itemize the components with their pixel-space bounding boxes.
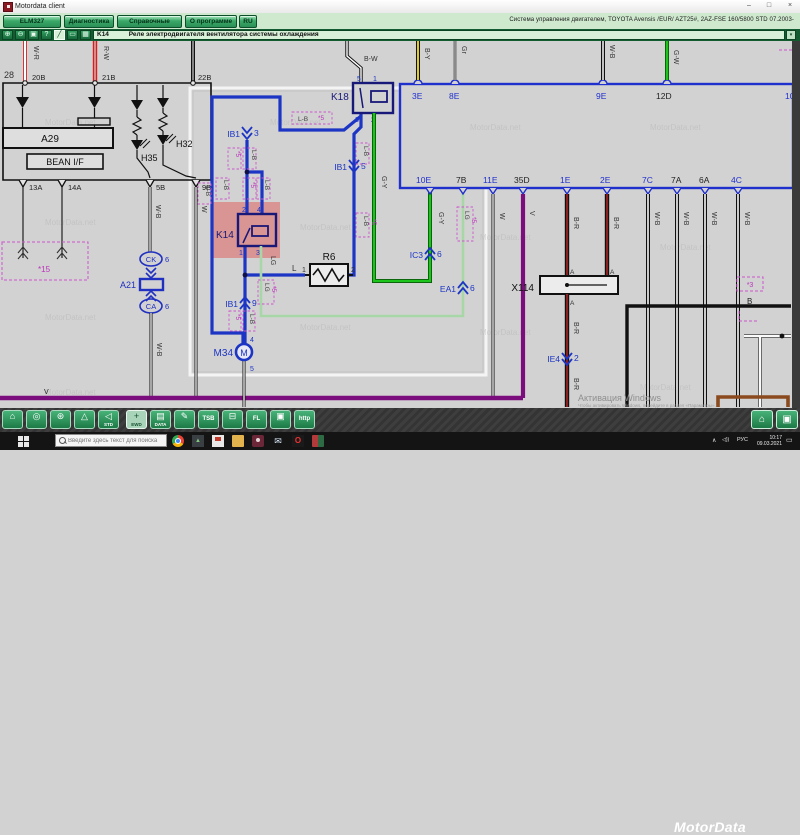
tag-lg: LG: [463, 211, 470, 220]
wire-label-wb: W-B: [155, 343, 162, 357]
label-5b: 5B: [156, 183, 165, 192]
k14-pin4: 4: [257, 207, 261, 214]
warning-triangle-icon[interactable]: △: [74, 410, 95, 429]
diagnostics-search-icon[interactable]: ◎: [26, 410, 47, 429]
wire-label-br: B-R: [572, 322, 579, 334]
tray-expand-icon[interactable]: ∧: [712, 437, 716, 444]
wire-label-br: B-R: [572, 378, 579, 390]
wire-label-v: V: [528, 211, 535, 216]
tag-lg: LG: [263, 283, 270, 292]
folder-icon[interactable]: [232, 435, 244, 447]
menu-elm327[interactable]: ELM327: [3, 15, 61, 28]
ecu-pin-3e: 3E: [412, 91, 423, 101]
menu-diagnostics[interactable]: Диагностика: [64, 15, 114, 28]
settings-search-icon[interactable]: ⊛: [50, 410, 71, 429]
home-button[interactable]: ⌂: [751, 410, 773, 429]
pencil-icon[interactable]: ╱: [54, 30, 65, 40]
label-20b: 20B: [32, 73, 45, 82]
tag-lb: L-B: [298, 116, 308, 123]
ecu-pin-10e: 10E: [416, 175, 431, 185]
k14-pin1: 1: [239, 250, 243, 257]
start-button[interactable]: [18, 436, 29, 447]
label-22b: 22B: [198, 73, 211, 82]
tag-lb: L-B: [362, 146, 369, 156]
label-21b: 21B: [102, 73, 115, 82]
home-glyph: ⌂: [3, 411, 22, 422]
tag-lb: L-B: [263, 180, 270, 190]
notes-icon[interactable]: ✎: [174, 410, 195, 429]
tag-star5: *5: [234, 151, 241, 158]
ref-ic3: IC3: [410, 250, 424, 260]
watermark: MotorData.net: [45, 218, 96, 227]
audio-glyph: ◁: [99, 411, 118, 422]
settings-search-glyph: ⊛: [51, 411, 70, 422]
label-a21: A21: [120, 280, 136, 290]
app-icon: [3, 2, 13, 12]
wire-label-br: B-R: [612, 217, 619, 229]
label-k18: K18: [331, 92, 349, 103]
meet-icon[interactable]: [312, 435, 324, 447]
label-star15: *15: [38, 265, 51, 274]
motordata-logo: MotorData: [674, 819, 746, 835]
notes-glyph: ✎: [175, 411, 194, 422]
label-ca-6: 6: [165, 302, 169, 311]
ref-ib1-3: IB1: [227, 129, 240, 139]
wire-label-by: B-Y: [423, 48, 430, 60]
ewd-glyph: +: [127, 411, 146, 422]
tsb-icon[interactable]: TSB: [198, 410, 219, 429]
label-h35: H35: [141, 153, 158, 163]
ref-ea1: EA1: [440, 284, 456, 294]
menu-language[interactable]: RU: [239, 15, 257, 28]
car-glyph: ⊟: [223, 411, 242, 422]
ecu-pin-6a: 6A: [699, 175, 710, 185]
data-glyph: ▤: [151, 411, 170, 422]
home-icon[interactable]: ⌂: [2, 410, 23, 429]
people-icon[interactable]: [252, 435, 264, 447]
notification-icon[interactable]: ▭: [786, 436, 793, 444]
ecu-pin-7a: 7A: [671, 175, 682, 185]
windows-taskbar: ▲ ✉ O ∧ ◁)) РУС 10:17 09.03.2021 ▭: [0, 432, 800, 450]
fuse-label: FL: [247, 411, 266, 428]
ecu-pin-8e: 8E: [449, 91, 460, 101]
watermark: MotorData.net: [270, 118, 321, 127]
splice-a: A: [570, 269, 575, 276]
wire-label-lg: LG: [269, 256, 276, 265]
k18-pin3: 3: [355, 117, 359, 124]
wire-label-gw: G-W: [672, 50, 679, 65]
vehicle-info: Система управления двигателем, TOYOTA Av…: [509, 17, 794, 23]
photos-icon[interactable]: ▲: [192, 435, 204, 447]
component-description: Реле электродвигателя вентилятора систем…: [129, 31, 319, 38]
maximize-button[interactable]: □: [762, 1, 776, 11]
book-icon[interactable]: ▣: [270, 410, 291, 429]
speaker-icon[interactable]: ◁)): [722, 437, 729, 443]
label-x114: X114: [511, 283, 534, 294]
http-label: http: [295, 411, 314, 428]
opera-icon[interactable]: O: [292, 435, 304, 447]
wire-label-wr: W-R: [32, 46, 39, 60]
title-bar: Motordata client – □ ×: [0, 0, 800, 14]
watermark: MotorData.net: [650, 123, 701, 132]
wire-label-w: W: [498, 213, 505, 220]
warning-triangle-glyph: △: [75, 411, 94, 422]
label-star3: *3: [747, 282, 754, 289]
ecu-pin-1e: 1E: [560, 175, 571, 185]
book-button[interactable]: ▣: [776, 410, 798, 429]
ref-ie4-pin: 2: [574, 353, 579, 363]
m34-pin5: 5: [250, 366, 254, 373]
wire-label-gy: G-Y: [380, 176, 387, 189]
close-button[interactable]: ×: [783, 1, 797, 11]
activation-watermark: Активация Windows: [578, 393, 661, 403]
bottom-app-bar: ⌂ ◎ ⊛ △ ◁STD +EWD ▤DATA ✎ TSB ⊟ FL ▣ htt…: [0, 408, 800, 432]
watermark: MotorData.net: [45, 388, 96, 397]
tag-lb: L-B: [248, 314, 255, 324]
ecu-pin-35d: 35D: [514, 175, 530, 185]
tag-star5: *5: [234, 314, 241, 321]
ref-ib1-9: IB1: [225, 299, 238, 309]
component-code: K14: [97, 31, 109, 38]
pan-icon[interactable]: ▭: [67, 30, 78, 40]
palette-icon[interactable]: ▦: [80, 30, 91, 40]
wire-label-wb: W-B: [682, 212, 689, 226]
tray-date: 09.03.2021: [757, 441, 782, 447]
minimize-button[interactable]: –: [742, 1, 756, 11]
mail-icon[interactable]: ✉: [272, 435, 284, 447]
tag-star5: *5: [470, 217, 477, 224]
splice-a: A: [610, 269, 615, 276]
menu-about[interactable]: О программе: [185, 15, 237, 28]
menu-bar: ELM327 Диагностика Справочные данные О п…: [0, 13, 800, 30]
ecu-pin-7b: 7B: [456, 175, 467, 185]
ecu-pin-7c: 7C: [642, 175, 653, 185]
k14-pin2: 2: [242, 207, 246, 214]
component-combo[interactable]: K14 Реле электродвигателя вентилятора си…: [93, 30, 785, 40]
data-label: DATA: [151, 422, 170, 427]
ref-ib1-9-pin: 9: [252, 298, 257, 308]
ecu-pin-2e: 2E: [600, 175, 611, 185]
watermark: MotorData.net: [300, 223, 351, 232]
label-bean: BEAN I/F: [46, 157, 84, 167]
wire-label-wb: W-B: [653, 212, 660, 226]
store-icon[interactable]: [212, 435, 224, 447]
wire-label-wb: W-B: [743, 212, 750, 226]
ewd-icon[interactable]: +EWD: [126, 410, 147, 429]
taskbar-clock[interactable]: 10:17 09.03.2021: [757, 435, 782, 447]
wire-label-b: B: [747, 297, 752, 306]
ref-ib1-3-pin: 3: [254, 128, 259, 138]
ecu-pin-12d: 12D: [656, 91, 672, 101]
wire-label-wb: W-B: [710, 212, 717, 226]
window-title: Motordata client: [15, 3, 65, 10]
chrome-icon[interactable]: [172, 435, 184, 447]
tag-lb: L-B: [222, 180, 229, 190]
ref-ib1-5: IB1: [334, 162, 347, 172]
audio-icon[interactable]: ◁STD: [98, 410, 119, 429]
wire-label-bw: B-W: [364, 56, 378, 63]
wire-label-w: W: [200, 206, 207, 213]
wire-label-rw: R-W: [102, 46, 109, 60]
label-28: 28: [4, 70, 14, 80]
tag-lb: L-B: [362, 216, 369, 226]
label-13a: 13A: [29, 183, 42, 192]
label-ck-6: 6: [165, 255, 169, 264]
label-m: M: [240, 348, 248, 358]
label-k14: K14: [216, 230, 234, 241]
label-ca: CA: [146, 302, 156, 311]
wire-label-gr: Gr: [460, 46, 467, 54]
ref-ea1-pin: 6: [470, 283, 475, 293]
right-scroll-strip[interactable]: [792, 41, 800, 408]
tag-star5: *5: [270, 286, 277, 293]
k14-pin3: 3: [256, 250, 260, 257]
tag-lb: L-B: [250, 150, 257, 160]
label-h32: H32: [176, 139, 193, 149]
watermark: MotorData.net: [45, 313, 96, 322]
ecu-pin-11e: 11E: [483, 175, 498, 185]
k18-pin5: 5: [357, 76, 361, 83]
label-l: L: [292, 264, 297, 273]
m34-pin4: 4: [250, 337, 254, 344]
search-input[interactable]: [68, 438, 163, 444]
image-icon[interactable]: ▣: [28, 30, 39, 40]
search-icon: [59, 437, 66, 444]
ref-ie4: IE4: [547, 354, 560, 364]
wire-label-wb: W-B: [154, 205, 161, 219]
car-icon[interactable]: ⊟: [222, 410, 243, 429]
data-icon[interactable]: ▤DATA: [150, 410, 171, 429]
label-14a: 14A: [68, 183, 81, 192]
label-m34: M34: [214, 348, 234, 359]
diagnostics-search-glyph: ◎: [27, 411, 46, 422]
label-ck: CK: [146, 255, 156, 264]
combo-dropdown-icon[interactable]: ▾: [786, 30, 796, 40]
watermark: MotorData.net: [470, 123, 521, 132]
ref-ic3-pin: 6: [437, 249, 442, 259]
wire-label-wb: W-B: [608, 45, 615, 59]
fuse-icon[interactable]: FL: [246, 410, 267, 429]
ref-ib1-5-pin: 5: [361, 161, 366, 171]
ewd-label: EWD: [127, 422, 146, 427]
wiring-diagram-canvas[interactable]: MotorData.net MotorData.net MotorData.ne…: [0, 41, 800, 408]
ecu-pin-9e: 9E: [596, 91, 607, 101]
tsb-label: TSB: [199, 411, 218, 428]
watermark: MotorData.net: [300, 323, 351, 332]
label-r6: R6: [323, 252, 336, 263]
tag-lb: L-B: [204, 186, 211, 196]
k18-pin1: 1: [373, 76, 377, 83]
tag-star5: *5: [249, 182, 256, 189]
wire-label-br: B-R: [572, 217, 579, 229]
taskbar-search[interactable]: [55, 434, 167, 447]
wire-label-v: V: [44, 389, 49, 396]
r6-pin2: 2: [351, 267, 355, 274]
ecu-pin-4c: 4C: [731, 175, 742, 185]
splice-a: A: [570, 300, 575, 307]
menu-reference-data[interactable]: Справочные данные: [117, 15, 182, 28]
zoom-out-icon[interactable]: ⊖: [15, 30, 26, 40]
diagram-toolbar: ⊕ ⊖ ▣ ? ╱ ▭ ▦ K14 Реле электродвигателя …: [0, 29, 800, 41]
wire-label-gy: G-Y: [437, 212, 444, 225]
http-icon[interactable]: http: [294, 410, 315, 429]
audio-label: STD: [99, 422, 118, 427]
book-glyph: ▣: [271, 411, 290, 422]
language-indicator[interactable]: РУС: [737, 437, 748, 443]
r6-pin1: 1: [302, 267, 306, 274]
label-a29: A29: [41, 134, 59, 145]
zoom-in-icon[interactable]: ⊕: [2, 30, 13, 40]
help-icon[interactable]: ?: [41, 30, 52, 40]
tag-star5: *5: [370, 219, 377, 226]
tag-star5: *5: [318, 115, 325, 122]
